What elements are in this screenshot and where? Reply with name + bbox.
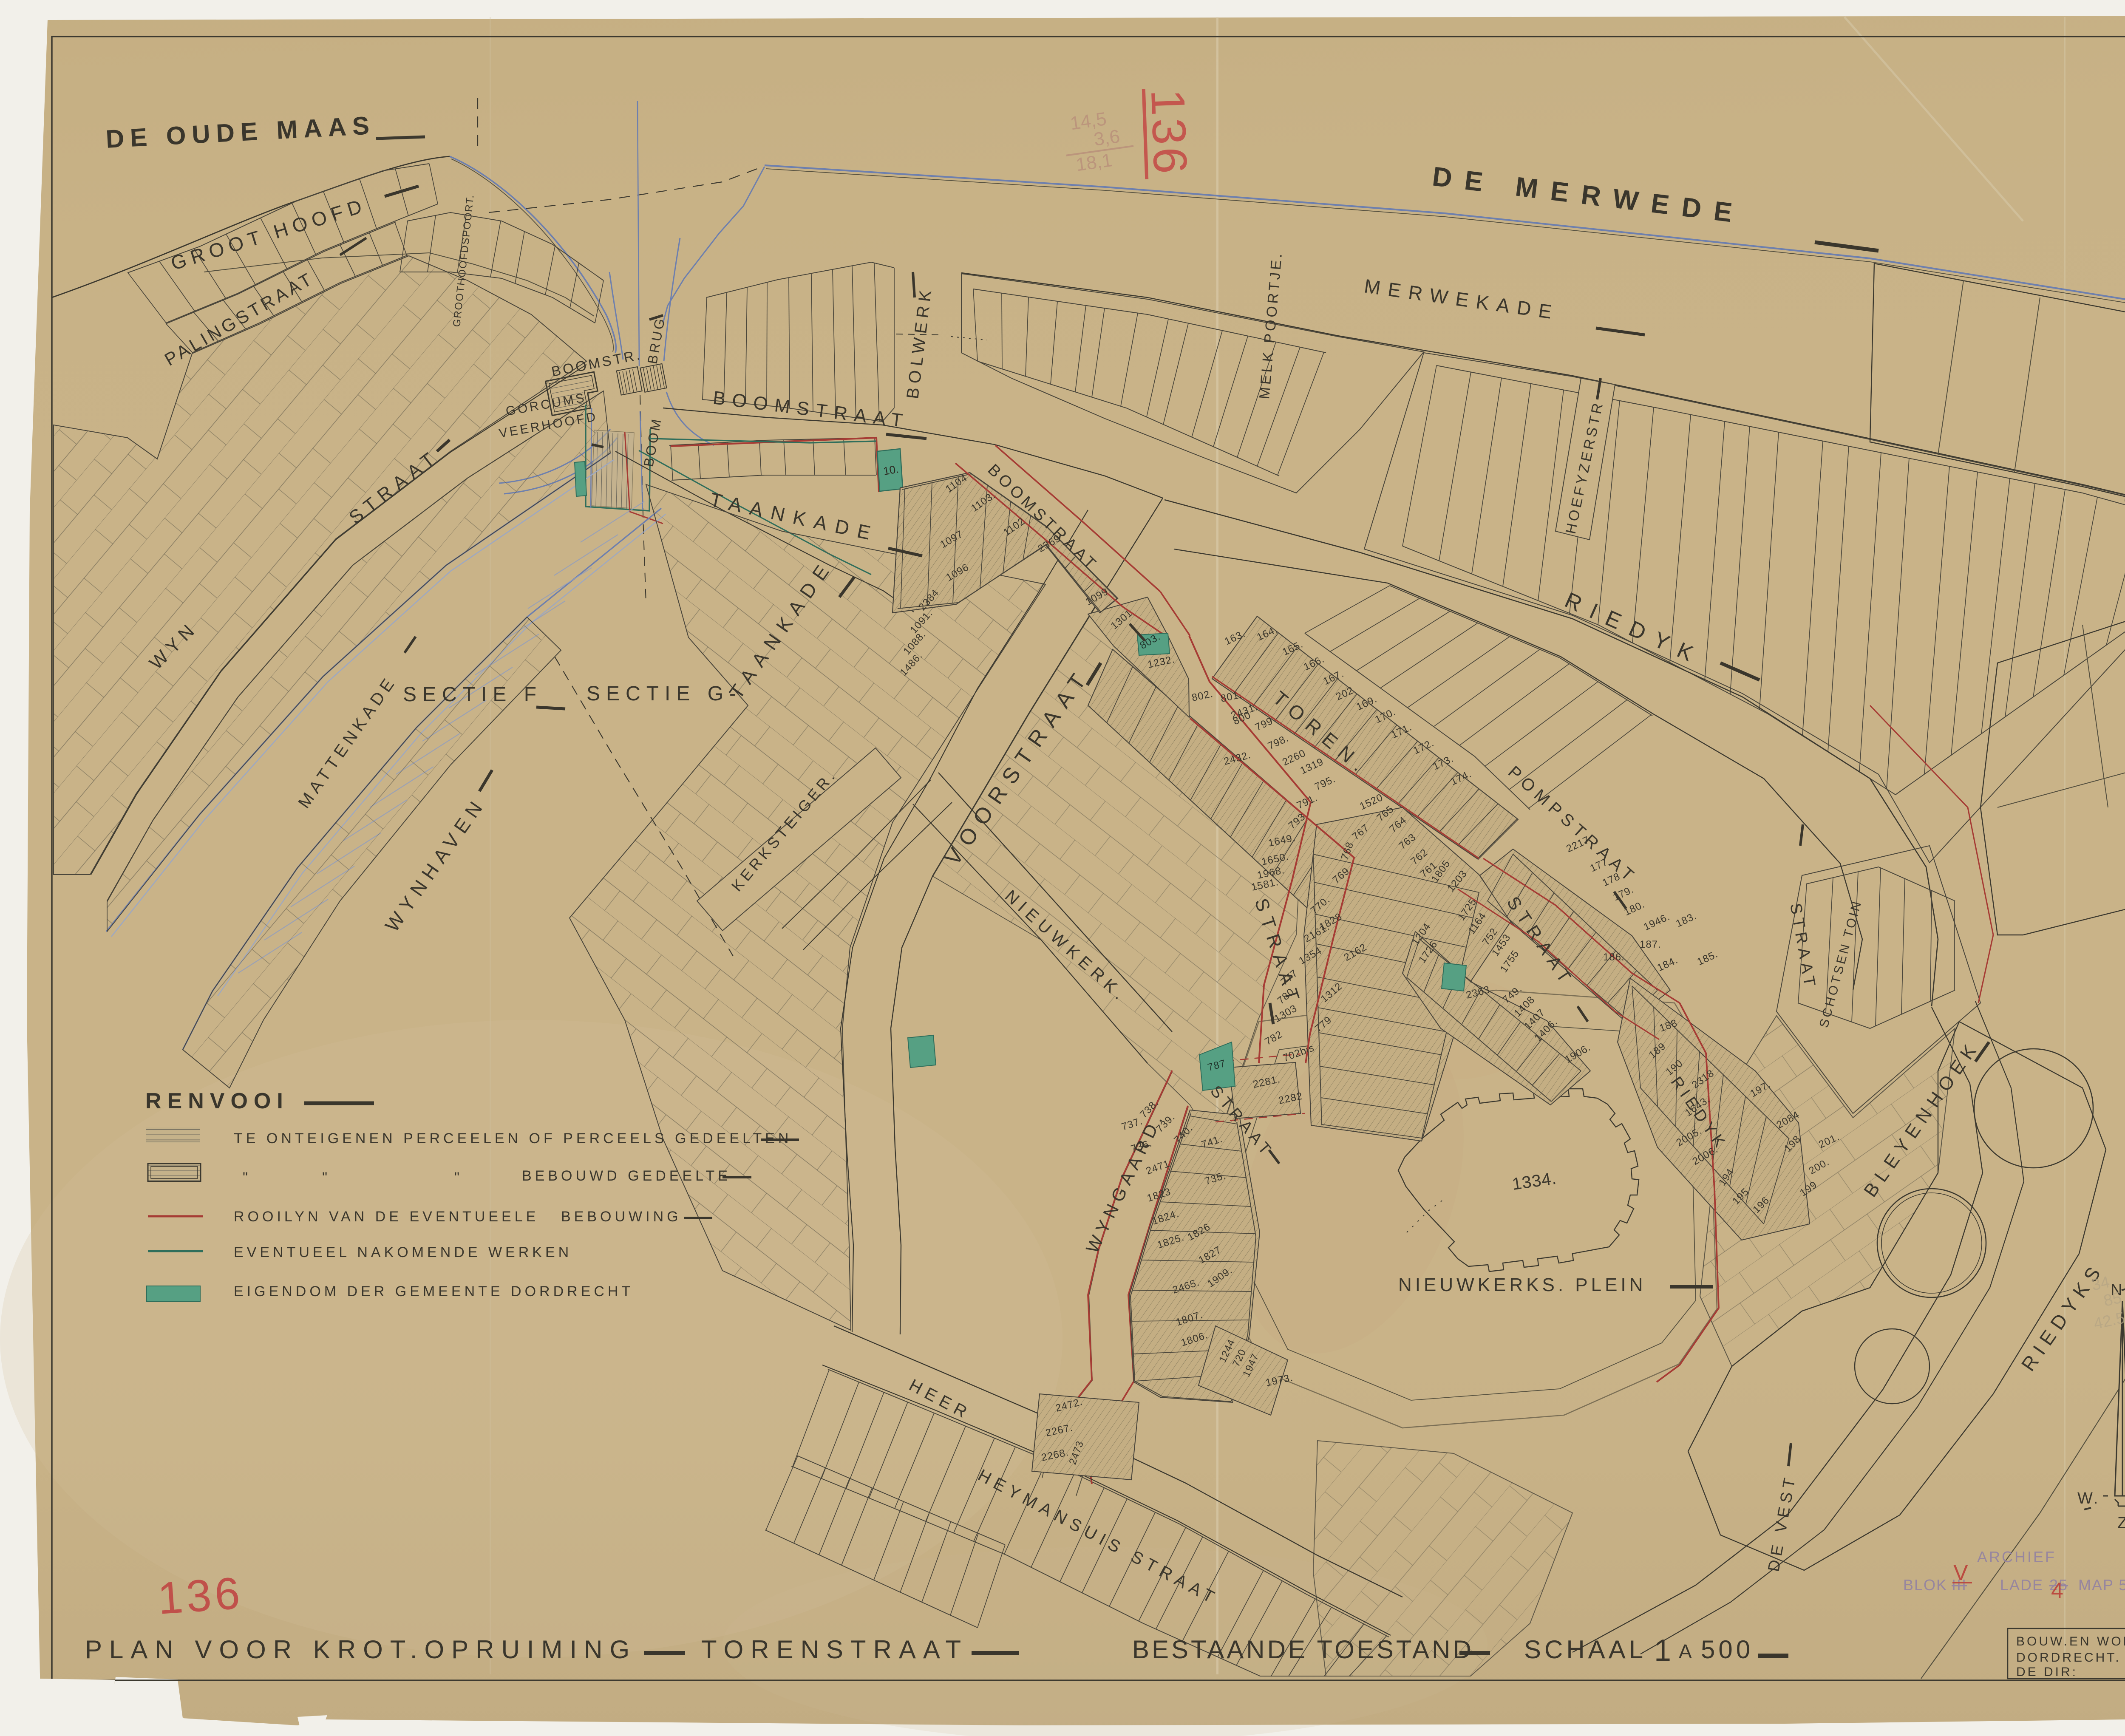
- svg-text:SECTIE G-: SECTIE G-: [586, 683, 742, 705]
- svg-text:": ": [454, 1170, 464, 1186]
- svg-text:DORDRECHT.: DORDRECHT.: [2016, 1651, 2121, 1665]
- svg-text:BLOK: BLOK: [1903, 1576, 1947, 1594]
- svg-text:EVENTUEEL NAKOMENDE WERKEN: EVENTUEEL NAKOMENDE WERKEN: [234, 1244, 572, 1260]
- svg-text:3,6: 3,6: [1093, 126, 1121, 150]
- svg-text:85: 85: [2102, 1289, 2123, 1310]
- svg-text:ROOILYN VAN DE EVENTUEELE: ROOILYN VAN DE EVENTUEELE: [234, 1209, 539, 1225]
- svg-text:TORENSTRAAT: TORENSTRAAT: [701, 1635, 968, 1664]
- svg-text:": ": [243, 1170, 252, 1186]
- svg-text:BEBOUWD GEDEELTE: BEBOUWD GEDEELTE: [522, 1168, 731, 1184]
- svg-text:ARCHIEF: ARCHIEF: [1977, 1548, 2056, 1566]
- svg-text:A: A: [1679, 1640, 1697, 1662]
- svg-text:TE ONTEIGENEN PERCEELEN OF PER: TE ONTEIGENEN PERCEELEN OF PERCEELS GEDE…: [234, 1130, 792, 1147]
- svg-text:187.: 187.: [1640, 939, 1661, 950]
- svg-text:Z.: Z.: [2117, 1514, 2125, 1532]
- svg-text:DE DIR:: DE DIR:: [2016, 1665, 2078, 1679]
- svg-text:SCHAAL: SCHAAL: [1524, 1635, 1646, 1664]
- svg-text:RENVOOI: RENVOOI: [145, 1089, 289, 1113]
- svg-text:W.: W.: [2077, 1490, 2099, 1507]
- svg-text:PLAN VOOR KROT.OPRUIMING: PLAN VOOR KROT.OPRUIMING: [85, 1635, 637, 1664]
- svg-text:BOUW.EN WONINGDIENST: BOUW.EN WONINGDIENST: [2016, 1634, 2125, 1648]
- svg-text:BEBOUWING: BEBOUWING: [561, 1209, 682, 1225]
- svg-text:136: 136: [1141, 88, 1197, 177]
- svg-text:10.: 10.: [882, 462, 900, 478]
- svg-text:SECTIE F: SECTIE F: [403, 683, 542, 706]
- svg-text:4: 4: [2051, 1578, 2063, 1603]
- svg-text:BESTAANDE TOESTAND: BESTAANDE TOESTAND: [1132, 1635, 1474, 1664]
- svg-text:186.: 186.: [1603, 952, 1625, 963]
- svg-text:EIGENDOM DER GEMEENTE DORDRECH: EIGENDOM DER GEMEENTE DORDRECHT: [234, 1283, 634, 1300]
- svg-text:500: 500: [1701, 1635, 1754, 1664]
- svg-text:MAP 53: MAP 53: [2078, 1576, 2125, 1594]
- svg-text:V: V: [1953, 1560, 1968, 1585]
- svg-text:136: 136: [156, 1568, 245, 1624]
- svg-text:": ": [322, 1170, 331, 1186]
- svg-text:LADE: LADE: [2000, 1576, 2043, 1594]
- svg-text:NIEUWKERKS. PLEIN: NIEUWKERKS. PLEIN: [1398, 1274, 1646, 1295]
- svg-text:1: 1: [1654, 1634, 1671, 1668]
